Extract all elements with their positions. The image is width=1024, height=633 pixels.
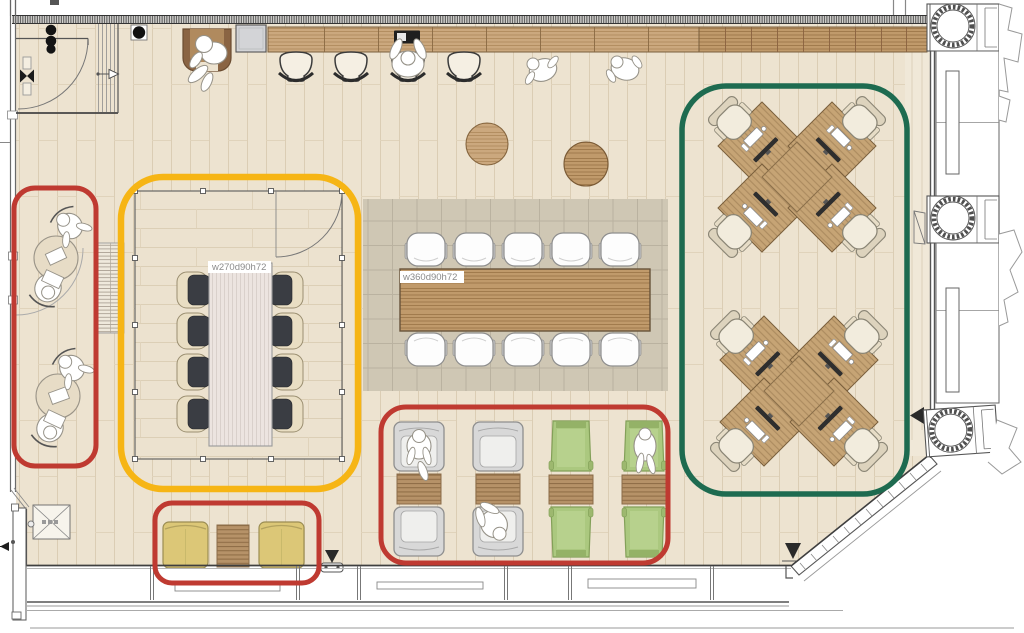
svg-text:w360d90h72: w360d90h72 [402, 272, 457, 283]
svg-text:w270d90h72: w270d90h72 [211, 262, 266, 273]
